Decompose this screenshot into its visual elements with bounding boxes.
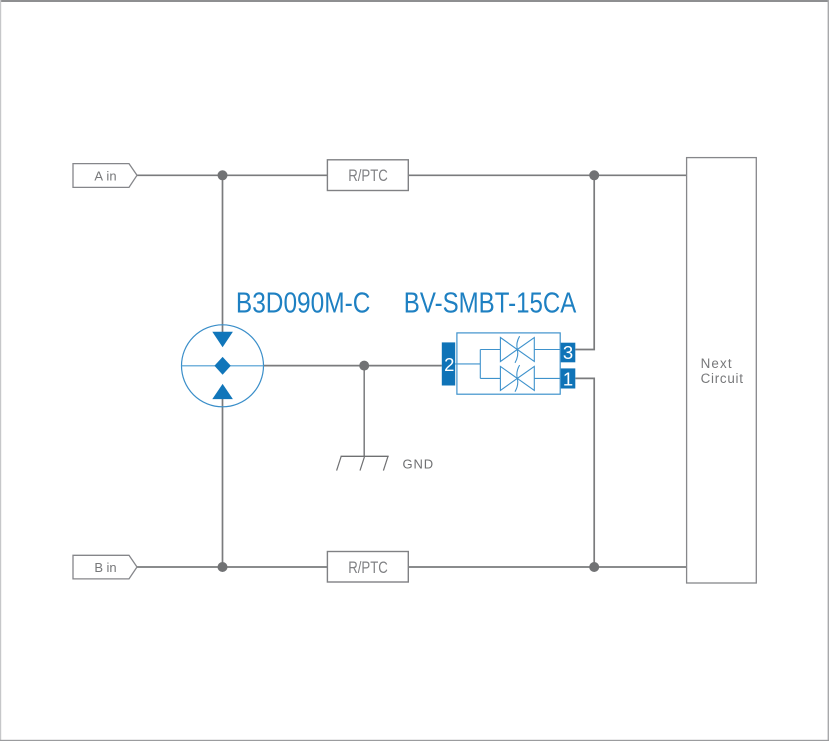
svg-text:1: 1 — [563, 368, 573, 389]
svg-text:GND: GND — [403, 456, 434, 471]
svg-text:Circuit: Circuit — [701, 371, 744, 386]
svg-text:Next: Next — [701, 356, 732, 371]
svg-text:BV-SMBT-15CA: BV-SMBT-15CA — [404, 288, 577, 320]
svg-text:3: 3 — [563, 342, 573, 363]
svg-text:2: 2 — [444, 354, 454, 375]
svg-text:R/PTC: R/PTC — [348, 166, 388, 185]
svg-text:B3D090M-C: B3D090M-C — [236, 288, 371, 320]
svg-text:A in: A in — [94, 168, 116, 183]
svg-text:B in: B in — [94, 560, 116, 575]
svg-text:R/PTC: R/PTC — [348, 558, 388, 577]
